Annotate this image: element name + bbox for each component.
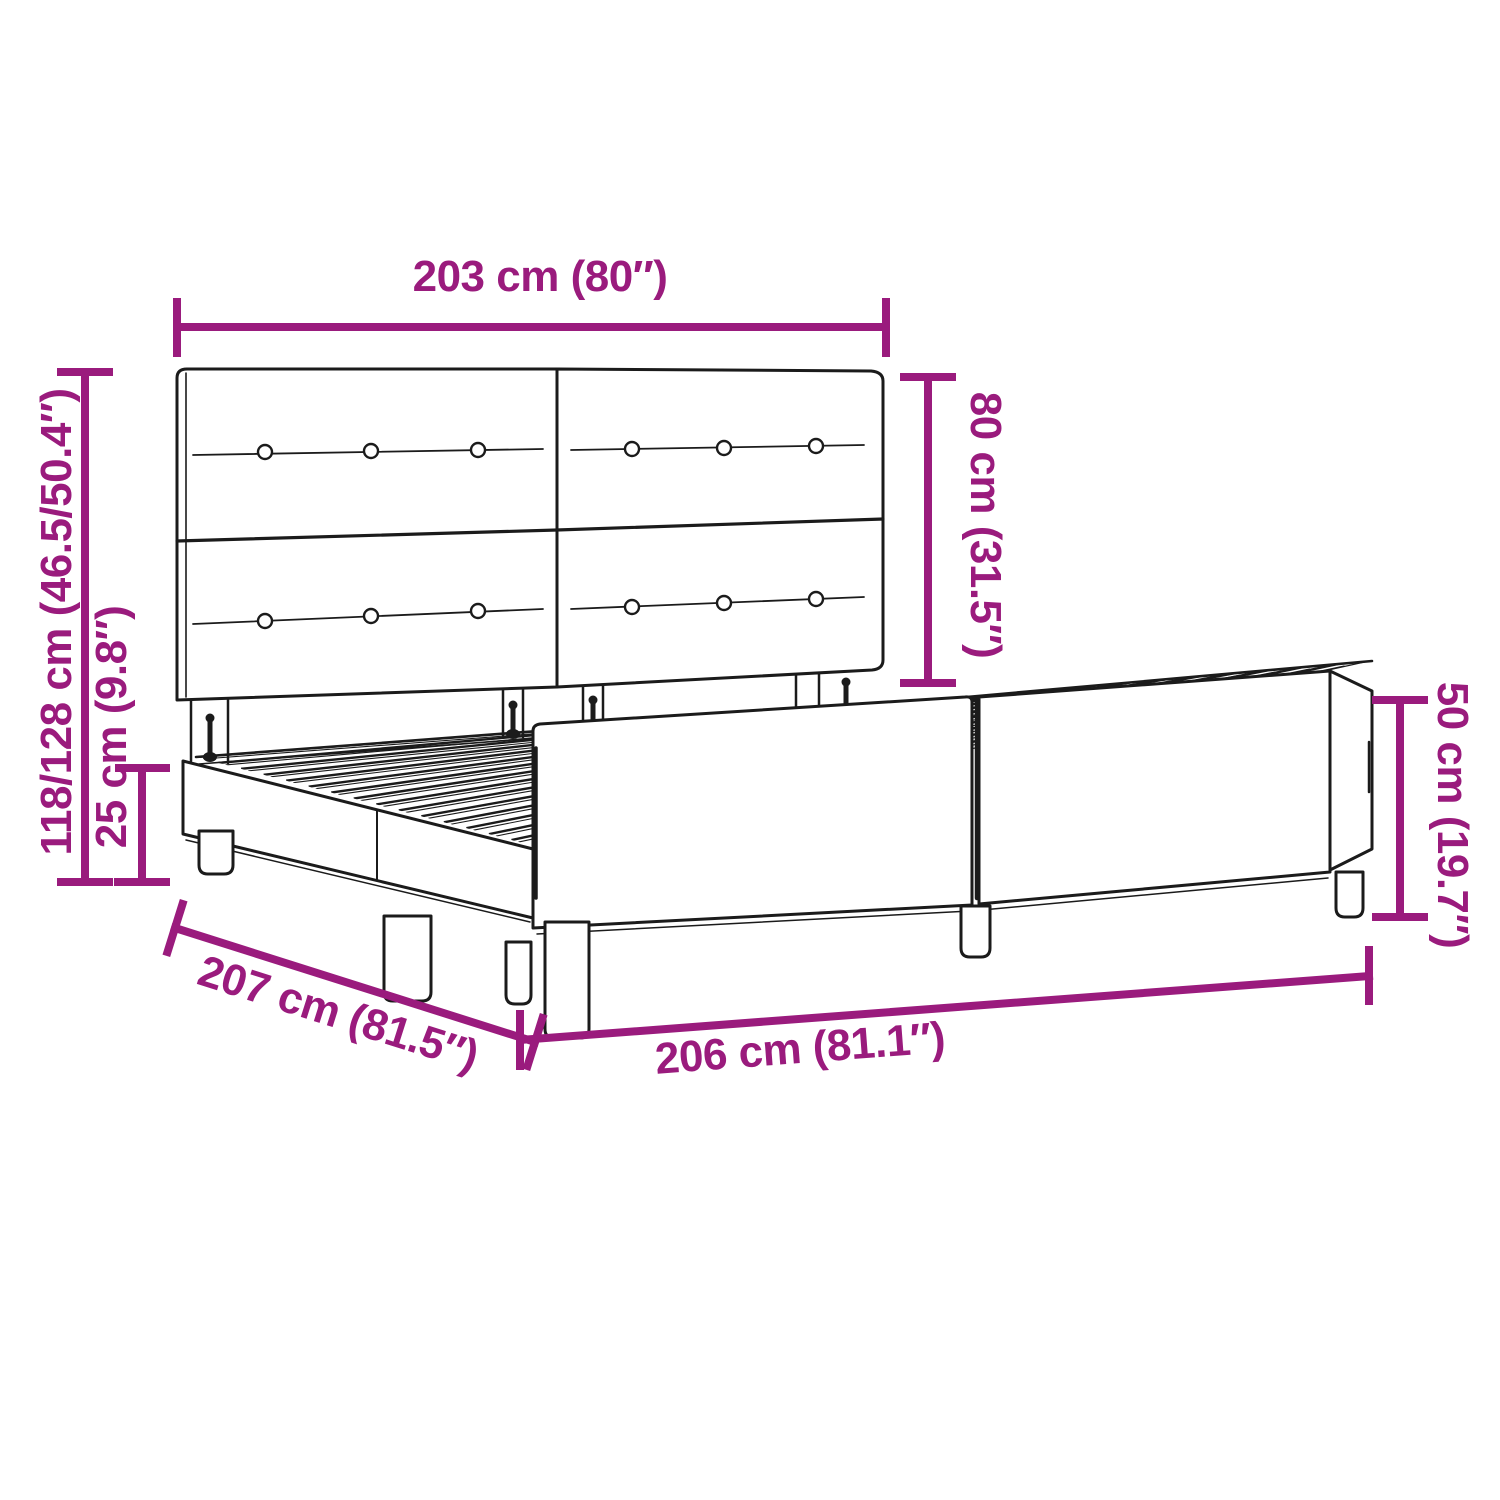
leg	[545, 922, 589, 1038]
base-rail	[183, 761, 533, 922]
side-panel-right	[979, 671, 1330, 904]
dimension-label-headboard-height: 80 cm (31.5″)	[960, 392, 1010, 659]
button	[471, 443, 485, 457]
leg	[961, 906, 990, 957]
side-panel-left	[533, 697, 972, 928]
foot-panels	[533, 671, 1372, 934]
button	[717, 596, 731, 610]
button	[364, 444, 378, 458]
button	[258, 614, 272, 628]
button	[809, 439, 823, 453]
dim-side-panel-height	[1376, 700, 1424, 917]
dim-headboard-height	[904, 377, 952, 683]
button	[364, 609, 378, 623]
bed-frame-illustration	[0, 0, 1500, 1500]
button	[258, 445, 272, 459]
bolt	[506, 701, 520, 740]
dimension-label-overall-height: 118/128 cm (46.5/50.4″)	[32, 388, 82, 855]
base-rail-front-face	[183, 761, 533, 918]
leg	[384, 916, 431, 1001]
dimension-label-headboard-width: 203 cm (80″)	[413, 252, 668, 302]
leg	[1336, 872, 1363, 917]
dimension-label-side-panel-height: 50 cm (19.7″)	[1427, 682, 1477, 949]
button	[809, 592, 823, 606]
leg	[506, 942, 531, 1004]
button	[625, 600, 639, 614]
button	[717, 441, 731, 455]
leg	[199, 831, 233, 874]
dim-headboard-width	[177, 302, 886, 353]
dimension-label-base-frame-height: 25 cm (9.8″)	[87, 606, 137, 849]
side-panel-end	[1330, 671, 1372, 870]
dimension-diagram: 203 cm (80″) 80 cm (31.5″) 118/128 cm (4…	[0, 0, 1500, 1500]
bolt	[203, 714, 217, 763]
headboard	[177, 369, 883, 700]
button	[471, 604, 485, 618]
button	[625, 442, 639, 456]
